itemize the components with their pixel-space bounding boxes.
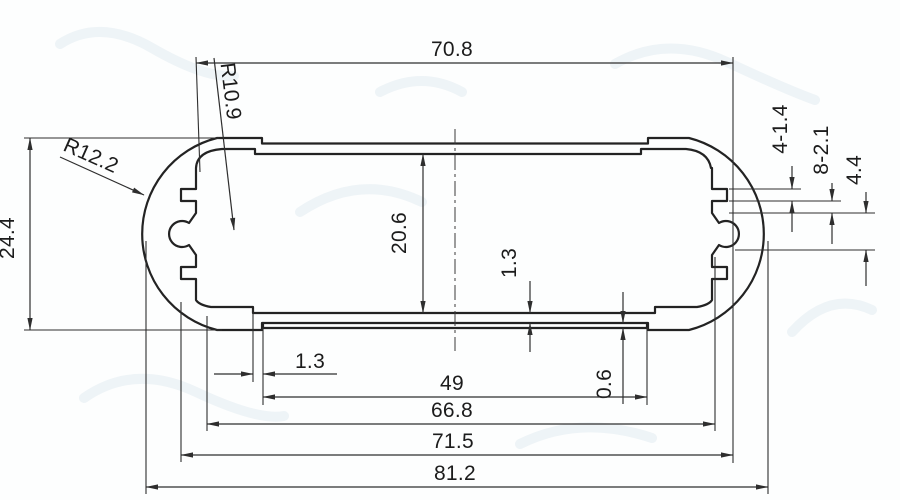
dim-inner-height: 20.6 xyxy=(388,154,423,313)
dim-label-bottom-step-depth: 0.6 xyxy=(593,369,616,399)
dim-label-bottom-step-width: 1.3 xyxy=(295,350,325,373)
dim-label-inner-height: 20.6 xyxy=(388,212,411,254)
dim-boss-offset: 4.4 xyxy=(843,155,866,286)
dim-label-wall-thickness: 1.3 xyxy=(498,248,521,278)
dim-inner-corner-radius: R10.9 xyxy=(214,58,245,230)
dim-bottom-step-width: 1.3 xyxy=(214,350,337,374)
dim-label-top-width: 70.8 xyxy=(431,38,473,61)
watermark-stroke xyxy=(380,81,462,92)
dim-tooth-spec: 8-2.1 xyxy=(810,125,833,244)
dim-wall-thickness: 1.3 xyxy=(498,248,530,352)
profile-drawing: 70.8 R10.9 R12.2 24.4 20.6 1.3 4-1.4 8-2… xyxy=(0,0,900,500)
watermark xyxy=(60,32,872,444)
watermark-stroke xyxy=(615,48,815,100)
dim-label-tooth-spec: 8-2.1 xyxy=(810,125,833,174)
watermark-stroke xyxy=(60,32,234,76)
dim-overall-height: 24.4 xyxy=(0,138,30,330)
inner-contour xyxy=(169,149,739,313)
dim-label-boss-offset: 4.4 xyxy=(843,155,866,185)
dim-overall-width: 81.2 xyxy=(146,462,768,487)
dim-label-panel-width: 49 xyxy=(440,372,464,395)
dim-panel-width: 49 xyxy=(263,372,647,397)
dim-label-overall-width: 81.2 xyxy=(434,462,476,485)
dim-end-radius: R12.2 xyxy=(60,134,144,195)
profile-section xyxy=(142,129,764,351)
dim-label-slot-spec: 4-1.4 xyxy=(769,104,792,153)
watermark-stroke xyxy=(520,427,652,444)
outer-contour xyxy=(142,138,764,330)
dim-label-overall-height: 24.4 xyxy=(0,217,19,259)
watermark-stroke xyxy=(792,304,872,332)
dim-label-inner-width: 66.8 xyxy=(431,399,473,422)
watermark-stroke xyxy=(84,379,284,417)
dim-label-slot-outer-width: 71.5 xyxy=(432,430,474,453)
drawing-canvas: 70.8 R10.9 R12.2 24.4 20.6 1.3 4-1.4 8-2… xyxy=(0,0,900,500)
watermark-stroke xyxy=(300,189,422,212)
dim-bottom-step-depth: 0.6 xyxy=(593,292,623,404)
